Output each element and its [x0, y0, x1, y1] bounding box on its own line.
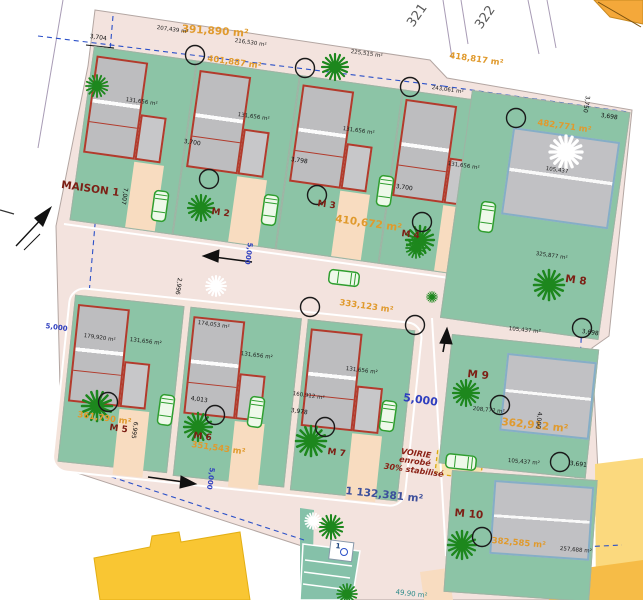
plot-m6-subarea-label: 174,053 m²	[197, 321, 230, 331]
house-m1-area-label: 131,656 m²	[125, 98, 158, 108]
plot-m2-name-label: M 2	[211, 208, 230, 220]
plot-m8-subarea-label: 325,877 m²	[535, 252, 568, 262]
labels-layer: MAISON 1 M 2 M 3 M 4 M 5 M 6 M 7 M 8 M 9…	[0, 0, 643, 600]
plot-m6-area-label: 351,543 m²	[191, 441, 246, 457]
dim-label-3698b: 3,698	[581, 329, 599, 338]
plot-m7-name-label: M 7	[327, 448, 346, 460]
parcel-number-322: 322	[473, 4, 498, 32]
dim-label-3704: 3,704	[89, 34, 107, 43]
annex-area-label: 49,90 m²	[395, 589, 428, 600]
house-m3-area-label: 131,656 m²	[342, 127, 375, 137]
house-m6-area-label: 131,656 m²	[240, 352, 273, 362]
house-m7-area-label: 131,656 m²	[345, 367, 378, 377]
dim-label-7007: 7,007	[119, 187, 128, 205]
plot-m1-area-label: 391,890 m²	[181, 24, 249, 40]
plot-m7-subarea-label: 160,912 m²	[292, 392, 325, 402]
dim-label-4000: 4,000	[534, 411, 542, 429]
plot-m10-area-label: 382,585 m²	[491, 537, 546, 551]
road-total-area-label: 1 132,381 m²	[345, 486, 424, 505]
house-m8-area-label: 105,437	[545, 167, 568, 176]
plot-m3-area-label: 410,672 m²	[334, 214, 402, 234]
road-width-label-mid: 5,000	[243, 242, 253, 265]
plot-m2-subarea-label: 216,530 m²	[234, 39, 267, 49]
plot-m5-area-label: 361,790 m²	[77, 411, 132, 427]
plot-m8-area-label: 482,771 m²	[537, 119, 592, 135]
plot-m3-name-label: M 3	[317, 200, 336, 212]
plot-m4-name-label: M 4	[401, 230, 420, 242]
plot-m7-area-label: 333,123 m²	[339, 299, 394, 315]
dim-label-4013: 4,013	[190, 396, 208, 405]
plot-m9-subarea-label: 208,772 m²	[472, 407, 504, 416]
dim-label-3978: 3,978	[290, 408, 308, 417]
site-plan: MAISON 1 M 2 M 3 M 4 M 5 M 6 M 7 M 8 M 9…	[0, 0, 643, 600]
plot-m10-subarea-label: 257,688 m²	[559, 547, 591, 556]
dim-label-3691: 3,691	[569, 461, 587, 469]
house-m5-area-label: 131,656 m²	[129, 338, 162, 348]
dim-label-3750: 3,750	[581, 95, 590, 113]
plot-m9-name-label: M 9	[467, 369, 489, 382]
road-width-label-east: 5,000	[402, 392, 438, 408]
plot-m1-name-label: MAISON 1	[60, 180, 120, 199]
road-width-label-south: 5,000	[205, 467, 215, 490]
dim-label-2996: 2,996	[173, 277, 182, 295]
parcel-number-321: 321	[405, 2, 430, 30]
plot-m5-subarea-label: 179,920 m²	[83, 334, 116, 344]
plot-m4-area-label: 418,817 m²	[449, 52, 504, 68]
parking-stall-number-label: 1	[335, 543, 341, 551]
dim-label-6995: 6,995	[129, 421, 138, 439]
plot-m10-name-label: M 10	[454, 508, 484, 521]
plot-m3-subarea-label: 225,515 m²	[350, 50, 383, 60]
road-name-label: VOIRIE enrobé 30% stabilisé	[370, 444, 459, 481]
house-m4-area-label: 131,656 m²	[447, 162, 480, 172]
dim-label-3700b: 3,700	[395, 184, 413, 193]
plot-m4-subarea-label: 243,061 m²	[431, 86, 464, 96]
dim-label-3700a: 3,700	[183, 139, 201, 148]
road-width-label-west: 5,000	[45, 323, 68, 333]
plot-m2-area-label: 401,887 m²	[207, 55, 262, 71]
house-m2-area-label: 131,656 m²	[237, 113, 270, 123]
plot-m8-name-label: M 8	[564, 274, 587, 288]
dim-label-3698a: 3,698	[600, 113, 618, 122]
dim-label-3798: 3,798	[290, 157, 308, 166]
house-m9-area-label: 105,437 m²	[508, 327, 540, 336]
house-m10-area-label: 105,437 m²	[507, 459, 539, 468]
